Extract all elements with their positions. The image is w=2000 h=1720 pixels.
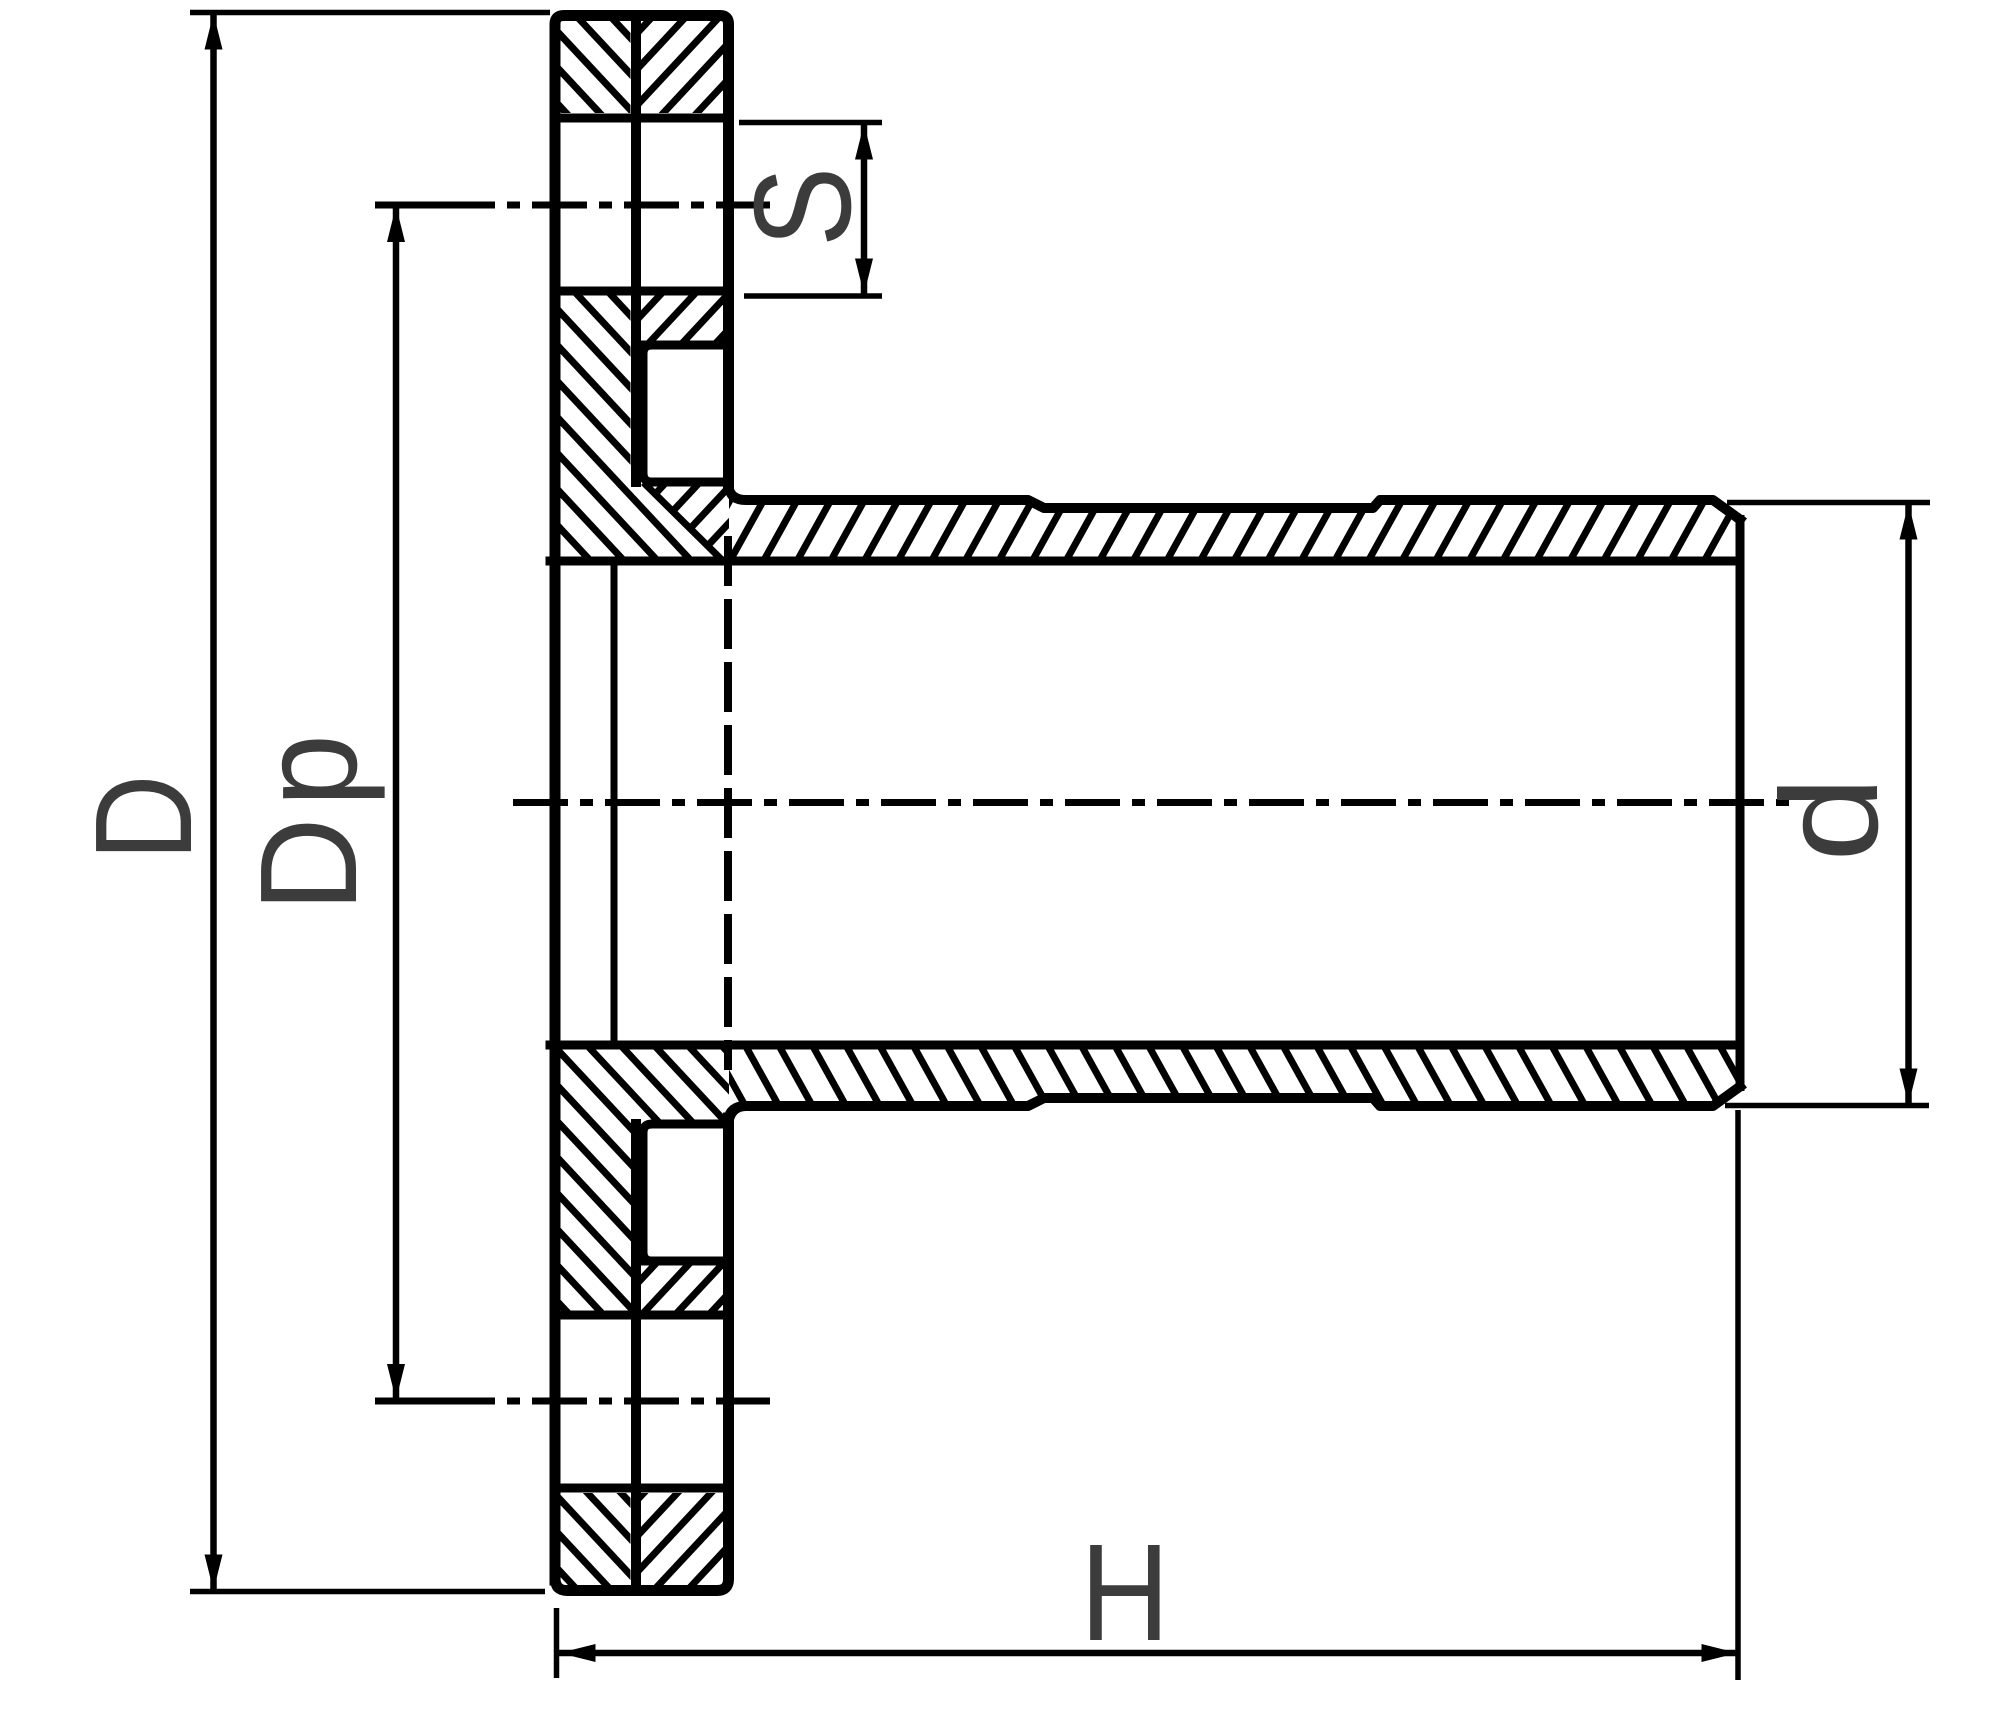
svg-text:d: d — [1753, 776, 1907, 862]
svg-text:Dp: Dp — [231, 724, 386, 912]
svg-text:H: H — [1080, 1515, 1170, 1670]
svg-text:S: S — [726, 167, 880, 247]
svg-text:D: D — [67, 774, 221, 861]
